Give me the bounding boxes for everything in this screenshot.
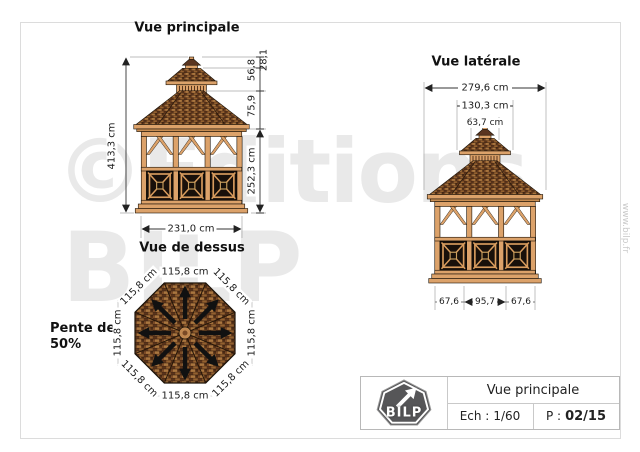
scale-label: Ech : (460, 409, 490, 423)
dim-wall-height: 252,3 cm (247, 145, 258, 196)
slope-note: Pente de 50% (50, 321, 115, 354)
dim-edge-e: 115,8 cm (247, 307, 258, 358)
bilp-logo-text: BILP (386, 406, 423, 421)
plan-page: { "watermark": { "line1": "©Editions", "… (0, 0, 640, 452)
slope-note-line2: 50% (50, 337, 115, 353)
dim-edge-n: 115,8 cm (159, 267, 210, 278)
dim-edge-s: 115,8 cm (159, 391, 210, 402)
gazebo-front-view (134, 57, 250, 213)
title-block: BILP Vue principale Ech : 1/60 P : 02/15 (360, 376, 620, 430)
scale-value: 1/60 (493, 409, 520, 423)
page-label: P : (546, 409, 561, 423)
dim-roof-height: 75,9 (247, 95, 258, 117)
dim-side-overall-width: 279,6 cm (459, 83, 510, 94)
dim-finial-height: 28,1 (259, 49, 270, 71)
gazebo-side-view (427, 127, 543, 283)
slope-note-line1: Pente de (50, 321, 115, 337)
dim-main-width: 231,0 cm (165, 224, 216, 235)
dim-side-finial-width: 63,7 cm (465, 118, 506, 128)
title-block-view-name: Vue principale (447, 377, 619, 403)
side-view-title: Vue latérale (432, 55, 521, 70)
main-view-title: Vue principale (134, 21, 239, 36)
dim-total-height: 413,3 cm (107, 120, 118, 171)
dim-side-base-mid: 95,7 (473, 297, 497, 307)
dim-cupola-height: 56,8 (247, 59, 258, 81)
dim-side-base-left: 67,6 (437, 297, 461, 307)
dim-edge-w: 115,8 cm (113, 307, 124, 358)
dim-side-base-right: 67,6 (509, 297, 533, 307)
page-value: 02/15 (565, 409, 606, 424)
title-block-page: P : 02/15 (533, 403, 619, 429)
top-view-title: Vue de dessus (139, 241, 244, 256)
dim-side-cupola-width: 130,3 cm (459, 101, 510, 112)
title-block-scale: Ech : 1/60 (447, 403, 533, 429)
